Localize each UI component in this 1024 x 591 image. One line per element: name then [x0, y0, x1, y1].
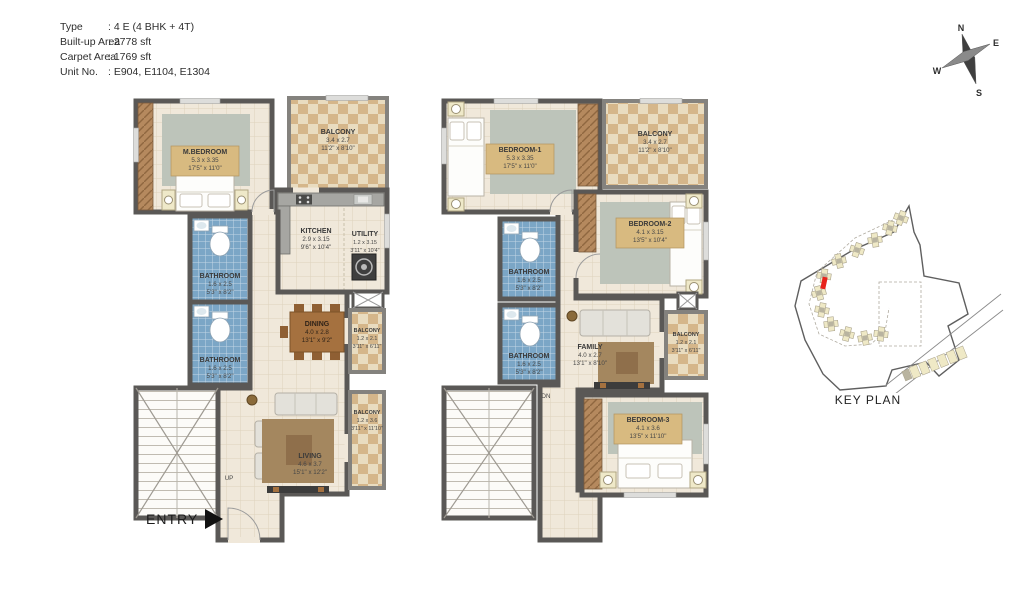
window	[494, 99, 538, 104]
room-name: BEDROOM-3	[627, 417, 670, 424]
room-dim-m: 2.9 x 3.15	[302, 236, 330, 243]
door-opening	[293, 188, 319, 193]
compass-w: W	[933, 66, 942, 76]
window	[624, 493, 676, 498]
toilet	[520, 316, 540, 346]
room-dim-ft: 17'5" x 11'0"	[503, 163, 536, 170]
plant	[567, 311, 577, 321]
room-name: BATHROOM	[509, 353, 550, 360]
upper-floor-plan: BEDROOM-1 5.3 x 3.35 17'5" x 11'0" BALCO…	[438, 94, 710, 548]
washing-machine	[352, 254, 376, 280]
key-plan	[793, 188, 1007, 393]
room-name: BALCONY	[354, 328, 381, 334]
room-dim-ft: 13'1" x 8'10"	[573, 360, 607, 367]
room-dim-ft: 3'11" x 10'4"	[350, 248, 379, 254]
entry-arrow-icon	[205, 509, 223, 529]
door-opening	[252, 209, 274, 215]
plant	[247, 395, 257, 405]
room-dim-m: 4.1 x 3.6	[636, 425, 660, 432]
info-value: : 2778 sft	[108, 35, 151, 50]
room-kitchen-utility: KITCHEN 2.9 x 3.15 9'6" x 10'4" UTILITY …	[275, 188, 390, 295]
info-row-carpet: Carpet Area: 1769 sft	[60, 50, 210, 65]
room-dim-m: 1.2 x 2.1	[357, 336, 378, 342]
info-label: Carpet Area	[60, 50, 108, 65]
room-dim-ft: 5'3" x 8'2"	[515, 285, 542, 292]
sink	[354, 195, 372, 205]
room-name: KITCHEN	[300, 228, 331, 235]
window	[385, 214, 390, 248]
room-dim-m: 3.4 x 2.7	[326, 137, 350, 144]
room-dim-ft: 5'3" x 8'2"	[515, 369, 542, 376]
window	[704, 222, 709, 260]
duct-shaft	[678, 293, 697, 309]
room-dim-ft: 11'2" x 8'10"	[638, 147, 671, 154]
wardrobe	[578, 194, 596, 252]
info-row-builtup: Built-up Area: 2778 sft	[60, 35, 210, 50]
room-dim-ft: 13'1" x 9'2"	[302, 337, 333, 344]
room-name: UTILITY	[352, 231, 379, 238]
room-dim-m: 5.3 x 3.35	[191, 157, 219, 164]
room-bathroom-2: BATHROOM 1.6 x 2.5 5'3" x 8'2"	[190, 302, 253, 385]
room-name: M.BEDROOM	[183, 149, 228, 156]
room-dim-m: 1.6 x 2.5	[208, 365, 232, 372]
compass-rose-icon: N E W S	[932, 22, 1002, 100]
room-dim-m: 4.6 x 3.7	[298, 461, 322, 468]
room-dim-ft: 9'6" x 10'4"	[301, 244, 332, 251]
room-dim-m: 1.6 x 2.5	[517, 361, 541, 368]
window	[326, 96, 368, 101]
compass-s: S	[976, 88, 982, 98]
room-bathroom-2: BATHROOM 1.6 x 2.5 5'3" x 8'2"	[500, 305, 561, 382]
unit-info: Type: 4 E (4 BHK + 4T) Built-up Area: 27…	[60, 20, 210, 80]
info-label: Unit No.	[60, 65, 108, 80]
room-name: BEDROOM-1	[499, 147, 542, 154]
room-dim-ft: 17'5" x 11'0"	[188, 165, 221, 172]
window	[134, 128, 139, 162]
wardrobe	[578, 104, 598, 186]
room-dim-m: 1.6 x 2.5	[517, 277, 541, 284]
room-dim-m: 1.2 x 3.15	[353, 240, 377, 246]
info-label: Built-up Area	[60, 35, 108, 50]
room-name: BALCONY	[321, 129, 356, 136]
info-row-type: Type: 4 E (4 BHK + 4T)	[60, 20, 210, 35]
room-dim-ft: 3'11" x 6'11"	[672, 348, 701, 354]
balcony-floor	[350, 392, 384, 488]
key-plan-label: KEY PLAN	[808, 393, 928, 407]
duct-shaft	[353, 292, 383, 308]
washbasin-bowl	[507, 225, 517, 232]
room-bedroom-3: BEDROOM-3 4.1 x 3.6 13'5" x 11'10"	[582, 395, 709, 498]
room-dim-m: 1.2 x 2.1	[676, 340, 697, 346]
wardrobe	[138, 103, 153, 210]
room-name: BATHROOM	[200, 273, 241, 280]
entry-marker: ENTRY	[146, 509, 223, 529]
room-dim-ft: 13'5" x 10'4"	[633, 237, 667, 244]
room-dim-ft: 11'2" x 8'10"	[321, 145, 354, 152]
toilet	[210, 312, 230, 342]
room-dim-m: 4.1 x 3.15	[636, 229, 664, 236]
wardrobe	[584, 399, 602, 489]
room-balcony-top: BALCONY 3.4 x 2.7 11'2" x 8'10"	[289, 96, 387, 191]
room-dim-m: 1.2 x 3.6	[357, 418, 378, 424]
tv-unit	[594, 382, 650, 389]
compass-e: E	[993, 38, 999, 48]
room-dim-ft: 15'1" x 12'2"	[293, 469, 327, 476]
toilet	[210, 226, 230, 256]
bed	[448, 102, 484, 211]
floor-plan-sheet: Type: 4 E (4 BHK + 4T) Built-up Area: 27…	[0, 0, 1024, 591]
room-name: BALCONY	[638, 131, 673, 138]
room-dim-m: 1.6 x 2.5	[208, 281, 232, 288]
stairs-down-label: DN	[542, 393, 551, 400]
tv-unit	[267, 486, 329, 493]
stove	[296, 195, 312, 205]
room-dim-ft: 5'3" x 8'2"	[206, 289, 233, 296]
room-balcony-mid: BALCONY 1.2 x 2.1 3'11" x 6'11"	[666, 312, 706, 378]
room-dim-ft: 5'3" x 8'2"	[206, 373, 233, 380]
room-dim-ft: 3'11" x 11'10"	[351, 426, 383, 432]
room-balcony-mid: BALCONY 1.2 x 2.1 3'11" x 6'11"	[350, 310, 384, 372]
room-name: DINING	[305, 321, 330, 328]
room-name: BATHROOM	[509, 269, 550, 276]
toilet	[520, 232, 540, 262]
sofa	[580, 310, 650, 336]
washbasin-bowl	[197, 222, 207, 229]
washbasin-bowl	[507, 311, 517, 318]
room-bathroom-1: BATHROOM 1.6 x 2.5 5'3" x 8'2"	[190, 216, 253, 302]
room-name: BALCONY	[354, 410, 381, 416]
room-dim-m: 5.3 x 3.35	[506, 155, 534, 162]
window	[640, 99, 682, 104]
room-master-bedroom: M.BEDROOM 5.3 x 3.35 17'5" x 11'0"	[134, 99, 273, 213]
room-name: BEDROOM-2	[629, 221, 672, 228]
room-name: BALCONY	[673, 332, 700, 338]
door-opening	[550, 209, 572, 215]
room-dim-ft: 3'11" x 6'11"	[353, 344, 382, 350]
balcony-floor	[289, 98, 387, 190]
window	[180, 99, 220, 104]
room-name: BATHROOM	[200, 357, 241, 364]
washbasin-bowl	[197, 308, 207, 315]
room-bathroom-1: BATHROOM 1.6 x 2.5 5'3" x 8'2"	[500, 219, 561, 299]
info-row-unitno: Unit No.: E904, E1104, E1304	[60, 65, 210, 80]
room-name: LIVING	[298, 453, 322, 460]
room-dim-m: 3.4 x 2.7	[643, 139, 667, 146]
staircase	[136, 388, 218, 518]
room-dim-m: 4.0 x 2.8	[305, 329, 329, 336]
room-bedroom-2: BEDROOM-2 4.1 x 3.15 13'5" x 10'4"	[576, 192, 709, 296]
room-dim-ft: 13'5" x 11'10"	[630, 433, 667, 440]
rug-center	[616, 352, 638, 374]
room-name: FAMILY	[577, 344, 602, 351]
window	[442, 128, 447, 164]
info-value: : E904, E1104, E1304	[108, 65, 210, 80]
compass-n: N	[958, 23, 965, 33]
lower-floor-plan: M.BEDROOM 5.3 x 3.35 17'5" x 11'0" BALCO…	[128, 94, 392, 548]
stairs-up-label: UP	[225, 475, 234, 482]
info-label: Type	[60, 20, 108, 35]
entry-label: ENTRY	[146, 511, 198, 527]
staircase	[444, 388, 534, 518]
room-dim-m: 4.0 x 2.7	[578, 352, 602, 359]
window	[704, 424, 709, 464]
info-value: : 1769 sft	[108, 50, 151, 65]
door-opening	[660, 332, 665, 358]
room-balcony-bottom: BALCONY 1.2 x 3.6 3'11" x 11'10"	[350, 392, 384, 488]
room-balcony-top: BALCONY 3.4 x 2.7 11'2" x 8'10"	[604, 99, 706, 188]
info-value: : 4 E (4 BHK + 4T)	[108, 20, 194, 35]
entry-door-opening	[228, 537, 260, 543]
